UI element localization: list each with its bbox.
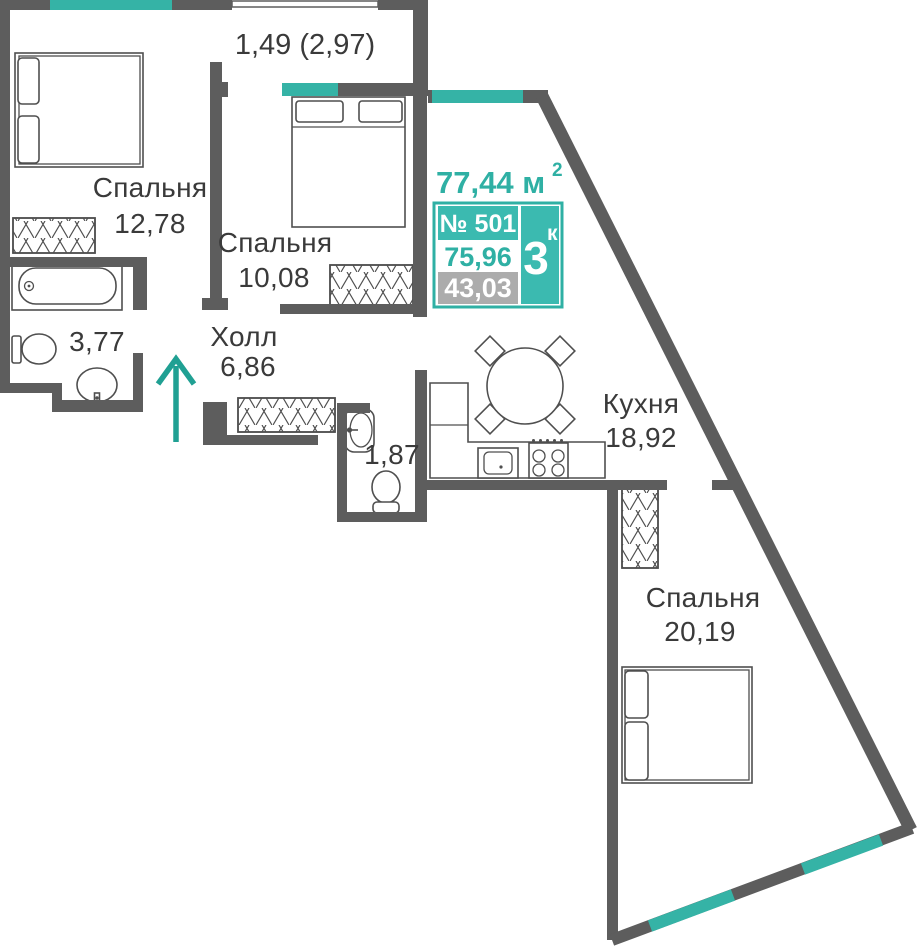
wardrobe-hatch [238,398,335,432]
apartment-number: № 501 [440,210,517,238]
hall-furniture [238,398,335,432]
bed-pillow [296,101,343,122]
wall-balcony-inner [338,83,428,96]
bedroom3-area: 20,19 [664,616,736,647]
bathtub-drain-dot [28,285,31,288]
total-area-sup: 2 [552,160,563,181]
wall-bedroom3-left [607,488,618,940]
wall-bedroom2-right [413,96,427,317]
wall-divider-foot [202,298,228,310]
wardrobe-hatch [622,488,658,568]
wall-wc-top [337,403,370,413]
bed-pillow [359,101,402,122]
wall-wc-left [337,403,347,522]
wc-area: 1,87 [364,439,420,470]
sink-tap-dot [95,396,99,400]
bedroom2-name: Спальня [218,227,333,258]
stove-knob [553,439,556,442]
wardrobe-hatch [13,218,95,253]
wc-toilet-base [373,502,399,513]
wall-kitchen-bottom [415,480,667,490]
window-segment [650,895,733,926]
window-segment [432,90,523,103]
wall-hall-bottom [223,435,318,445]
bedroom1-name: Спальня [93,172,208,203]
wall-bathroom-top [0,257,147,267]
toilet-tank [12,336,21,363]
wall-hall-top [280,304,427,314]
wall-left [0,0,10,393]
hall-name: Холл [210,321,277,352]
bed-pillow [18,58,39,104]
balcony-right-wall [413,0,428,96]
wall-divider [210,62,222,310]
toilet-bowl [22,334,56,364]
stove-knob [532,439,535,442]
total-area-label: 77,44 м [436,165,545,200]
stove-knob [560,439,563,442]
balcony-area-label: 1,49 (2,97) [235,29,375,61]
window-segment [803,840,881,869]
stove-knob [546,439,549,442]
bedroom1-area: 12,78 [114,208,186,239]
wall-wc-bottom [337,512,427,522]
bathroom-area: 3,77 [69,326,125,357]
window-segment [282,83,338,96]
wc-sink-tap-dot [347,427,352,432]
balcony-railing [232,1,378,7]
hall-area: 6,86 [220,351,276,382]
apartment-info-box: 77,44 м 2 № 501 75,96 43,03 3 к [434,160,563,307]
dining-table [487,348,563,424]
kitchen-name: Кухня [603,388,679,419]
wc-toilet-bowl [372,471,400,503]
bed-pillow [18,116,39,163]
rooms-count-sup: к [547,222,558,245]
bed-pillow [625,722,648,780]
wall-divider-foot [210,82,228,97]
area-secondary-2: 43,03 [444,273,512,303]
apartment-floor-plan: 1,49 (2,97) Спальня 12,78 Спальня 10,08 … [0,0,921,946]
kitchen-sink-drain [499,465,502,468]
kitchen-furniture [430,336,605,478]
stove-knob [539,439,542,442]
kitchen-area: 18,92 [605,422,677,453]
window-segment [50,0,172,10]
bed-pillow [625,671,648,718]
wall-bathroom-bottom [52,400,140,412]
bedroom2-area: 10,08 [238,262,310,293]
area-secondary-1: 75,96 [444,242,512,272]
entrance-arrow-icon [158,359,194,442]
bedroom3-name: Спальня [646,582,761,613]
bedroom-2-furniture [292,97,413,305]
wardrobe-hatch [330,265,413,305]
rooms-count: 3 [523,232,549,284]
wall-bathroom-stub [133,267,147,310]
